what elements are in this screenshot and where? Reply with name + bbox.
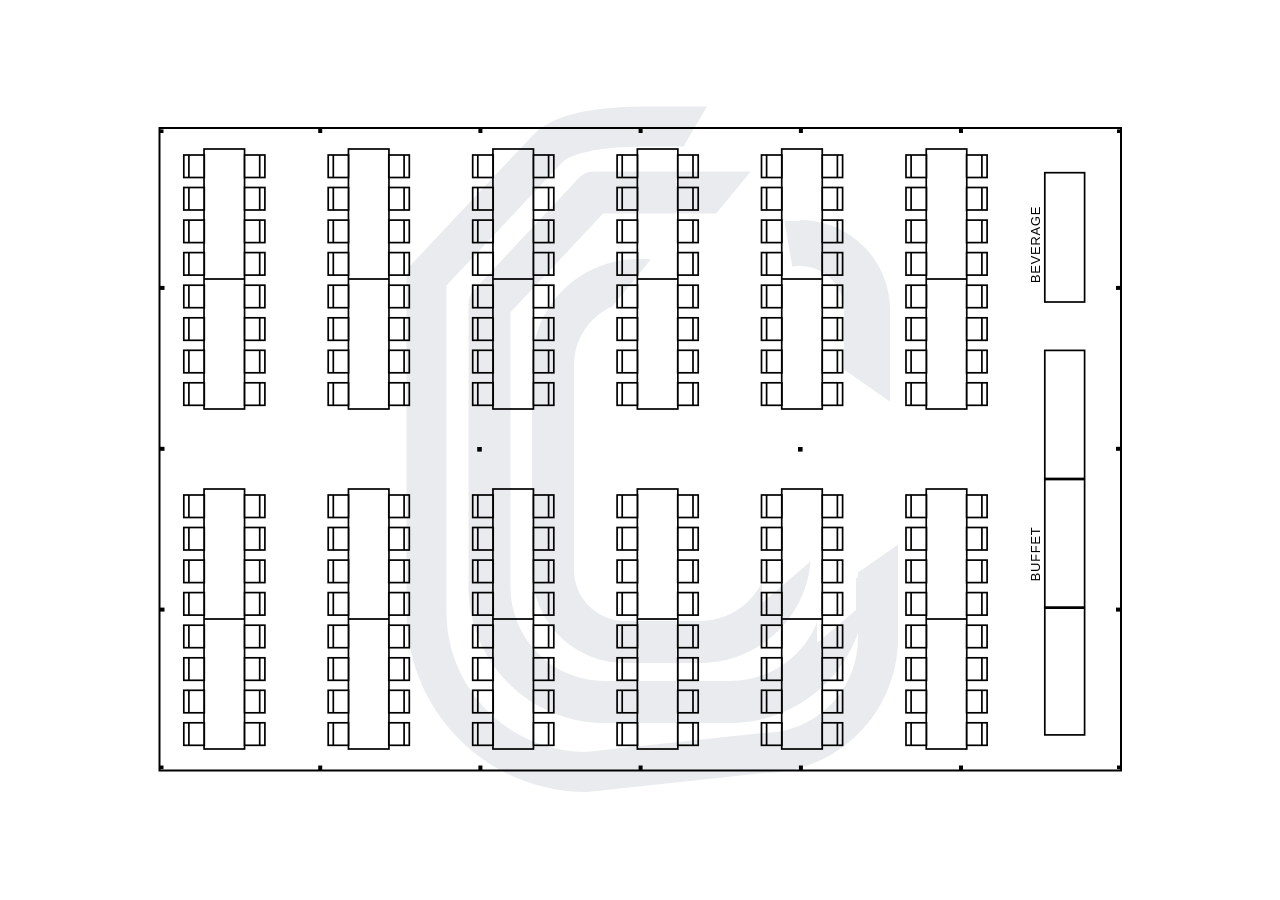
svg-text:BEVERAGE: BEVERAGE: [1028, 206, 1043, 283]
svg-text:BUFFET: BUFFET: [1028, 527, 1043, 582]
